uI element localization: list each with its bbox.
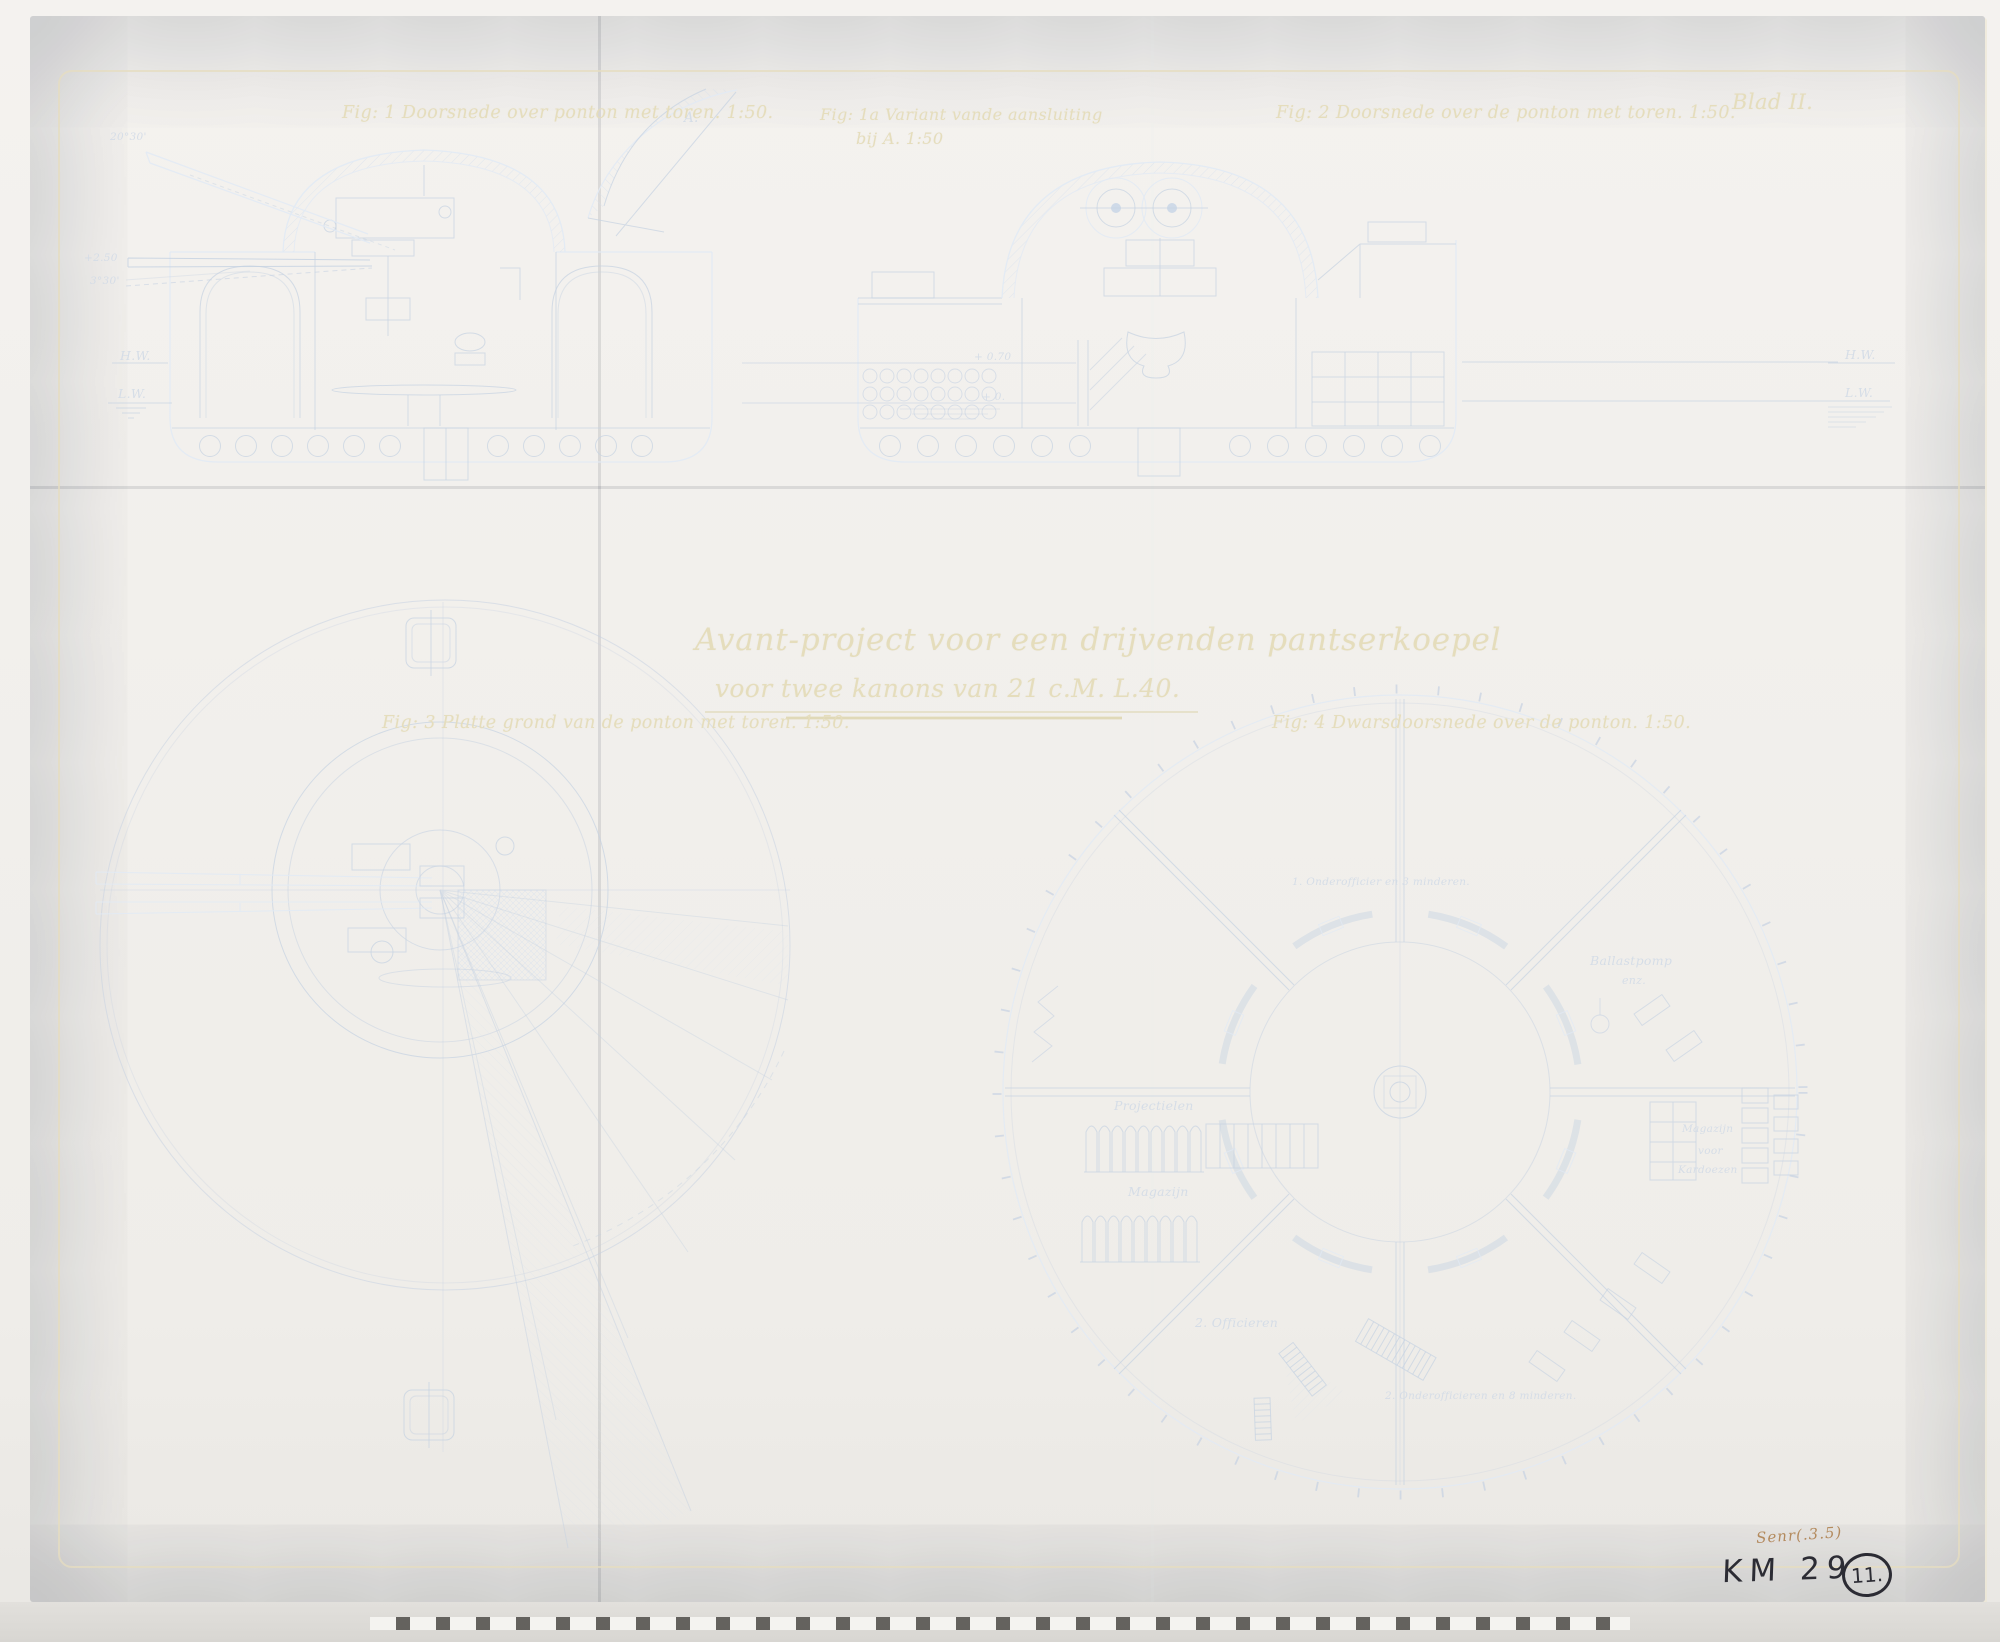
fig4-kardoezen-label-1: Magazijn [1682, 1123, 1733, 1135]
fig4-ballast-label-1: Ballastpomp [1590, 953, 1672, 968]
fig1-min-elevation-label: 3°30' [90, 275, 120, 287]
fig3-caption: Fig: 3 Platte grond van de ponton met to… [382, 713, 850, 733]
fig4-kardoezen-label-2: voor [1698, 1145, 1723, 1157]
fig4-crew-top-label: 1. Onderofficier en 3 minderen. [1292, 876, 1470, 888]
fig2-waterline-070-label: + 0.70 [974, 351, 1011, 363]
paper-mount: Fig: 1 Doorsnede over ponton met toren. … [0, 0, 2000, 1642]
fig1-caption: Fig: 1 Doorsnede over ponton met toren. … [342, 103, 774, 123]
circled-number-badge: 11. [1841, 1551, 1894, 1598]
fig2-waterline-0-label: + 0. [982, 391, 1005, 403]
pencil-circled-number: 11. [1842, 1553, 1892, 1597]
sheet-number: Blad II. [1732, 90, 1813, 114]
fig2-drawing [742, 162, 1895, 476]
drawing-title-line2: voor twee kanons van 21 c.M. L.40. [695, 674, 1200, 703]
pencil-inventory-number: KM 29 [1721, 1550, 1854, 1591]
fig4-ballast-label-2: enz. [1622, 974, 1646, 987]
fig1a-caption-line1: Fig: 1a Variant vande aansluiting [820, 105, 1103, 124]
fig2-highwater-label: H.W. [1845, 347, 1876, 362]
fig4-crew-bottom-label: 2. Onderofficieren en 8 minderen. [1385, 1390, 1577, 1402]
fig3-drawing [96, 600, 790, 1548]
fig4-caption: Fig: 4 Dwarsdoorsnede over de ponton. 1:… [1272, 713, 1691, 733]
fig1a-caption-line2: bij A. 1:50 [856, 129, 943, 148]
fig1-lowwater-label: L.W. [118, 386, 146, 401]
fig1-point-a-label: A. [684, 110, 699, 126]
fig2-caption: Fig: 2 Doorsnede over de ponton met tore… [1276, 103, 1736, 123]
fig4-drawing [997, 689, 1803, 1495]
fig4-projectielen-label: Projectielen [1114, 1098, 1194, 1113]
photo-scale-bar [370, 1617, 1630, 1630]
circled-number-text: 11. [1850, 1562, 1883, 1588]
fig1-highwater-label: H.W. [120, 348, 151, 363]
linework-layer [0, 0, 2000, 1642]
fig2-lowwater-label: L.W. [1845, 385, 1873, 400]
drawing-title-line1: Avant-project voor een drijvenden pantse… [695, 622, 1200, 658]
fig4-kardoezen-label-3: Kardoezen [1678, 1164, 1738, 1176]
fig4-officieren-label: 2. Officieren [1195, 1315, 1278, 1330]
fig4-magazijn-label: Magazijn [1128, 1184, 1189, 1199]
fig1-drawing [108, 150, 712, 480]
fig1-height-label: +2.50 [84, 252, 118, 264]
fig1-max-elevation-label: 20°30' [110, 131, 147, 143]
